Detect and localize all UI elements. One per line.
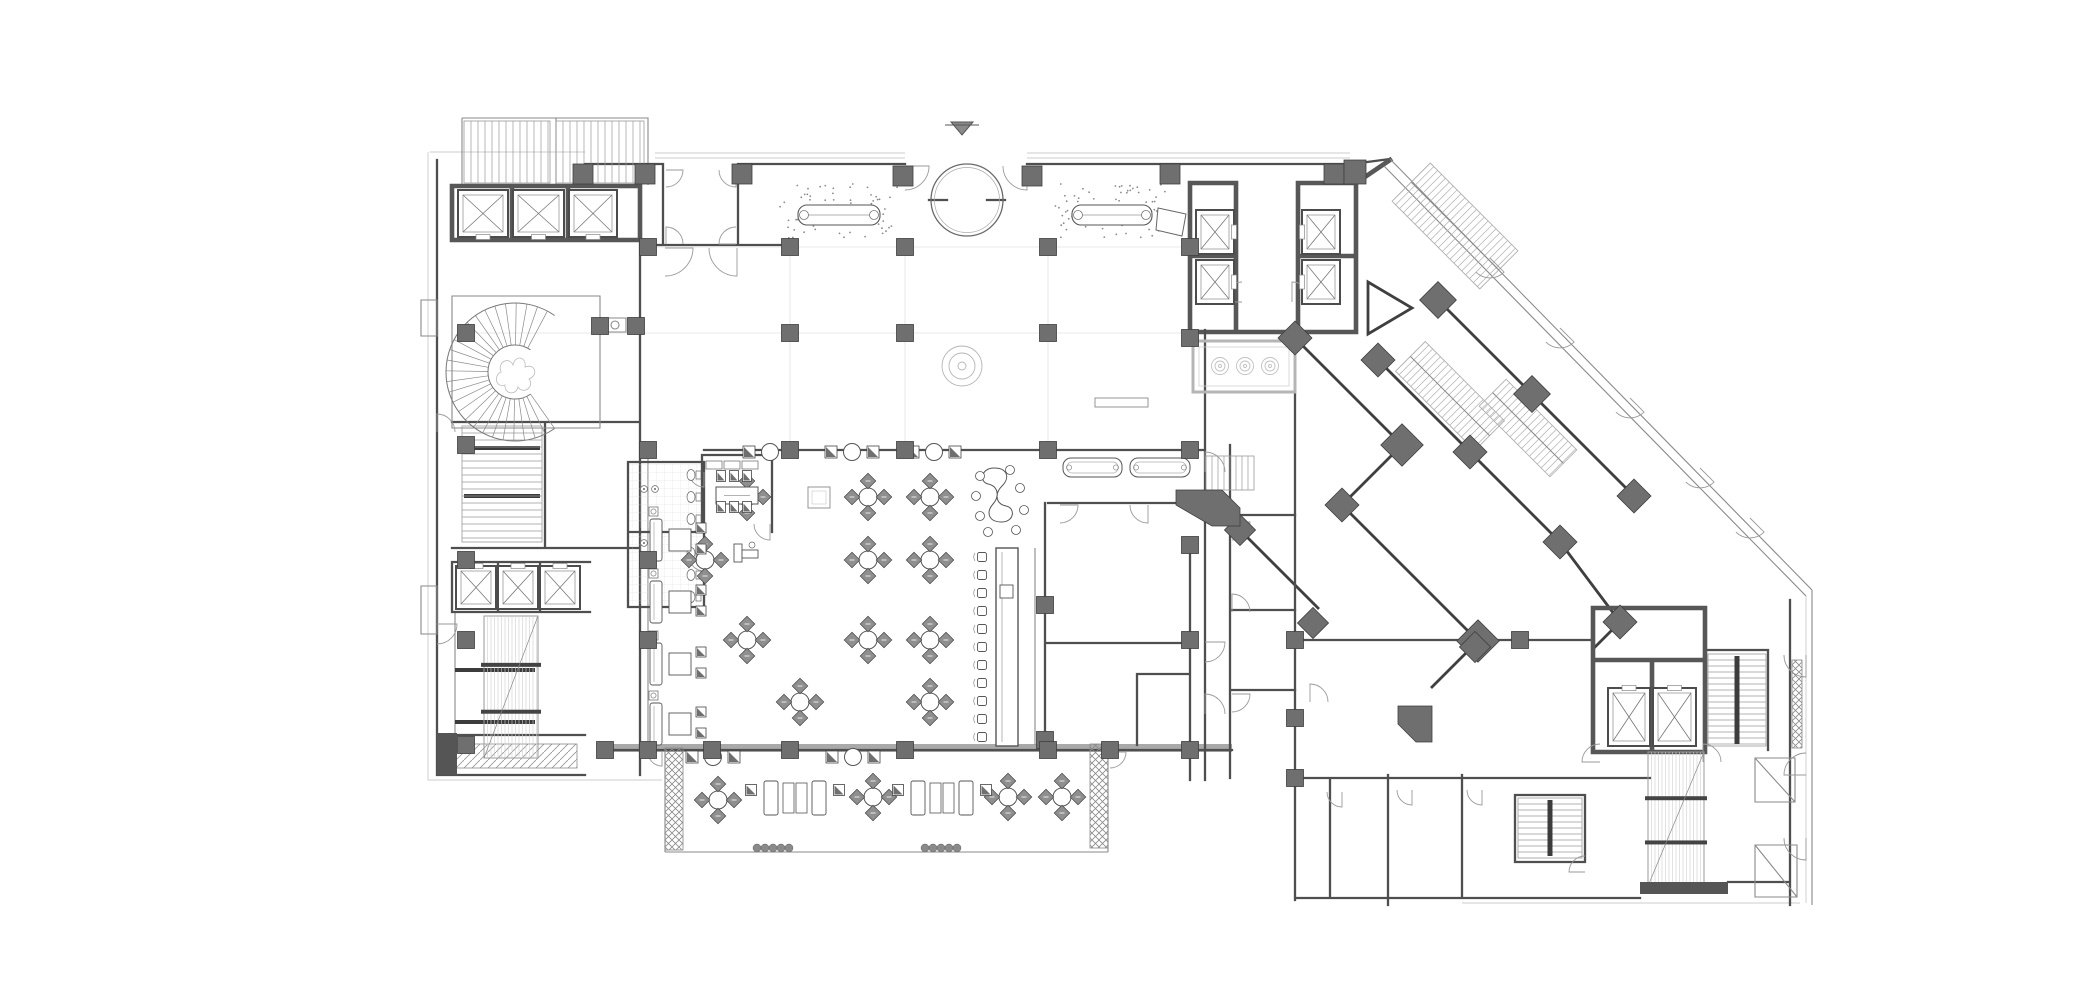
column bbox=[1040, 442, 1057, 459]
banquette-table-group bbox=[907, 444, 961, 461]
stipple-dot bbox=[1119, 186, 1121, 188]
stipple-dot bbox=[803, 231, 805, 233]
stipple-dot bbox=[1138, 192, 1140, 194]
table-top bbox=[859, 488, 877, 506]
sink-drain bbox=[643, 542, 645, 544]
stipple-dot bbox=[832, 187, 834, 189]
stipple-dot bbox=[783, 201, 785, 203]
host-desk bbox=[734, 544, 742, 562]
stipple-dot bbox=[1151, 235, 1153, 237]
elevator-shaft bbox=[1300, 260, 1341, 304]
concierge-podium bbox=[1156, 208, 1186, 236]
sofa bbox=[764, 781, 778, 815]
stair-treads bbox=[1212, 456, 1248, 490]
column bbox=[458, 737, 475, 754]
elevator-shaft bbox=[458, 190, 508, 240]
stipple-dot bbox=[843, 236, 845, 238]
escalator-landing bbox=[1645, 840, 1707, 844]
spiral-inner-rail bbox=[488, 345, 531, 399]
stipple-dot bbox=[833, 199, 835, 201]
host-seat bbox=[749, 542, 755, 548]
column bbox=[628, 318, 645, 335]
column bbox=[458, 437, 475, 454]
stipple-dot bbox=[824, 185, 826, 187]
wall-pier bbox=[573, 164, 593, 184]
door-swing-arc bbox=[666, 227, 683, 244]
stipple-dot bbox=[882, 213, 884, 215]
stair-center-rail bbox=[1735, 656, 1740, 744]
stipple-dot bbox=[878, 223, 880, 225]
stipple-dot bbox=[891, 225, 893, 227]
spiral-centerpiece-flower bbox=[496, 358, 534, 393]
column bbox=[1182, 239, 1199, 256]
shrub-icon bbox=[777, 844, 785, 852]
planter bbox=[665, 748, 683, 850]
shrub-icon bbox=[921, 844, 929, 852]
bar-counter bbox=[974, 548, 1018, 746]
escalator-treads bbox=[488, 616, 537, 758]
stipple-dot bbox=[882, 220, 884, 222]
toilet-icon bbox=[687, 492, 701, 503]
planter bbox=[1090, 744, 1108, 848]
escalator-direction-line bbox=[484, 616, 538, 758]
terrace-lounge-set bbox=[746, 781, 845, 815]
stipple-dot bbox=[1082, 188, 1084, 190]
counter bbox=[996, 548, 1018, 746]
floor-plan-sheet bbox=[0, 0, 2075, 1007]
table-top bbox=[738, 631, 756, 649]
column bbox=[1040, 325, 1057, 342]
column bbox=[897, 325, 914, 342]
dining-table-round bbox=[844, 616, 892, 664]
door-swing-arc bbox=[719, 227, 736, 244]
dining-table-round bbox=[844, 473, 892, 521]
column bbox=[897, 239, 914, 256]
shrub-icon bbox=[785, 844, 793, 852]
side-table bbox=[649, 507, 658, 516]
bench-seat bbox=[1130, 458, 1190, 477]
column bbox=[1287, 770, 1304, 787]
sofa bbox=[812, 781, 826, 815]
stool-icon bbox=[984, 528, 993, 537]
column bbox=[640, 632, 657, 649]
stipple-dot bbox=[1058, 207, 1060, 209]
stipple-dot bbox=[1103, 236, 1105, 238]
column bbox=[640, 742, 657, 759]
stipple-dot bbox=[819, 186, 821, 188]
stipple-dot bbox=[1136, 186, 1138, 188]
dining-table-round bbox=[723, 616, 771, 664]
stair-landing-bar bbox=[464, 446, 540, 450]
stipple-dot bbox=[850, 202, 852, 204]
floor-rug bbox=[808, 487, 830, 508]
door-swing-arc bbox=[754, 524, 770, 540]
reception-desk bbox=[1072, 205, 1152, 225]
toilet-tank bbox=[696, 493, 701, 501]
stipple-dot bbox=[788, 220, 790, 222]
planter bbox=[1792, 660, 1802, 748]
dining-table-round bbox=[906, 616, 954, 664]
stipple-dot bbox=[795, 219, 797, 221]
table-top bbox=[762, 444, 779, 461]
door-swing-arc bbox=[1310, 684, 1328, 702]
floor-medallion bbox=[949, 353, 975, 379]
door-swing-arc bbox=[1397, 790, 1412, 805]
escalator bbox=[481, 616, 541, 758]
table-top bbox=[859, 631, 877, 649]
shrub-icon bbox=[753, 844, 761, 852]
toilet-icon bbox=[687, 470, 701, 481]
column bbox=[640, 552, 657, 569]
stipple-dot bbox=[864, 236, 866, 238]
stipple-dot bbox=[1164, 191, 1166, 193]
elevator-door bbox=[1622, 686, 1636, 691]
floor-medallion bbox=[942, 346, 982, 386]
stipple-dot bbox=[885, 230, 887, 232]
toilet-tank bbox=[696, 515, 701, 523]
stair-handrail bbox=[1411, 182, 1499, 270]
sofa bbox=[911, 781, 925, 815]
stipple-dot bbox=[1060, 236, 1062, 238]
dining-table-round bbox=[849, 773, 897, 821]
table-top bbox=[844, 444, 861, 461]
stipple-dot bbox=[1120, 192, 1122, 194]
door-swing-arc bbox=[437, 624, 457, 644]
table-top bbox=[709, 791, 727, 809]
column bbox=[782, 325, 799, 342]
stipple-dot bbox=[1145, 201, 1147, 203]
stipple-dot bbox=[839, 233, 841, 235]
furniture-layer bbox=[649, 398, 1190, 824]
table-top bbox=[859, 551, 877, 569]
floor-rug-inner bbox=[812, 491, 826, 504]
column bbox=[1512, 632, 1529, 649]
stipple-dot bbox=[1077, 201, 1079, 203]
toilet-tank bbox=[696, 471, 701, 479]
stipple-dot bbox=[1118, 200, 1120, 202]
wall-pier bbox=[732, 164, 752, 184]
column bbox=[897, 442, 914, 459]
stipple-dot bbox=[809, 195, 811, 197]
stipple-dot bbox=[824, 199, 826, 201]
column bbox=[1040, 742, 1057, 759]
elevator-door bbox=[1232, 225, 1237, 239]
toilet-bowl bbox=[687, 570, 695, 581]
elevator-shaft bbox=[513, 190, 564, 240]
stipple-dot bbox=[896, 186, 898, 188]
column bbox=[897, 742, 914, 759]
elevator-door bbox=[476, 235, 490, 240]
door-swing-arc bbox=[1205, 694, 1225, 714]
floor-medallion bbox=[958, 362, 966, 370]
stool-icon bbox=[978, 589, 987, 598]
elevator-door bbox=[1668, 686, 1682, 691]
stool-icon bbox=[1016, 484, 1025, 493]
column bbox=[782, 239, 799, 256]
staircase bbox=[1206, 456, 1254, 490]
elevator-shaft bbox=[1196, 260, 1237, 304]
door-swing-arc bbox=[666, 170, 683, 187]
stool-icon bbox=[978, 607, 987, 616]
stipple-dot bbox=[800, 196, 802, 198]
lobby-bench bbox=[1063, 458, 1122, 477]
entry-arrow-icon bbox=[951, 122, 973, 135]
stipple-dot bbox=[879, 198, 881, 200]
stool-back bbox=[974, 661, 975, 669]
dining-table-round bbox=[906, 473, 954, 521]
stipple-dot bbox=[1132, 188, 1134, 190]
shrub-icon bbox=[929, 844, 937, 852]
table-top bbox=[864, 788, 882, 806]
stool-back bbox=[974, 715, 975, 723]
stipple-dot bbox=[832, 193, 834, 195]
column bbox=[1182, 537, 1199, 554]
wall-band bbox=[1640, 882, 1728, 894]
sink-drain bbox=[643, 488, 645, 490]
table-top bbox=[921, 693, 939, 711]
stipple-dot bbox=[807, 188, 809, 190]
shrub-icon bbox=[945, 844, 953, 852]
stipple-dot bbox=[871, 203, 873, 205]
wall-pier bbox=[1324, 164, 1344, 184]
banquette-table-group bbox=[825, 444, 879, 461]
stipple-dot bbox=[1126, 192, 1128, 194]
cabinet bbox=[706, 461, 722, 469]
stool-icon bbox=[978, 679, 987, 688]
sofa bbox=[650, 643, 662, 685]
walls-layer bbox=[421, 118, 1812, 905]
table-top bbox=[791, 693, 809, 711]
stair-center-rail bbox=[1548, 800, 1553, 856]
elevator-shaft bbox=[1196, 210, 1237, 254]
sofa bbox=[650, 703, 662, 745]
coffee-table bbox=[669, 529, 691, 551]
fountain-jet-icon bbox=[1262, 358, 1279, 375]
elevator-door bbox=[532, 235, 546, 240]
stipple-dot bbox=[814, 229, 816, 231]
toilet-bowl bbox=[687, 470, 695, 481]
side-table bbox=[649, 691, 658, 700]
stool-back bbox=[974, 553, 975, 561]
stool-icon bbox=[976, 512, 985, 521]
stipple-dot bbox=[1115, 233, 1117, 235]
stipple-dot bbox=[1125, 233, 1127, 235]
fountain-jet-icon bbox=[1244, 365, 1247, 368]
stipple-dot bbox=[779, 206, 781, 208]
door-swing-arc bbox=[1736, 518, 1764, 538]
table-top bbox=[1053, 788, 1071, 806]
column bbox=[1182, 442, 1199, 459]
stool-icon bbox=[978, 643, 987, 652]
stipple-dot bbox=[787, 226, 789, 228]
bar-station bbox=[1000, 585, 1013, 598]
lounge-set bbox=[649, 631, 706, 685]
stipple-dot bbox=[1066, 229, 1068, 231]
door-swing-arc bbox=[1060, 505, 1078, 523]
stipple-dot bbox=[1055, 205, 1057, 207]
table-top bbox=[921, 488, 939, 506]
stipple-dot bbox=[1068, 218, 1070, 220]
stipple-dot bbox=[1127, 190, 1129, 192]
stool-icon bbox=[978, 733, 987, 742]
stool-back bbox=[974, 625, 975, 633]
column bbox=[782, 442, 799, 459]
door-swing-arc bbox=[1232, 694, 1250, 712]
column bbox=[1102, 742, 1119, 759]
door-swing-arc bbox=[1616, 398, 1644, 418]
stool-back bbox=[974, 589, 975, 597]
stipple-dot bbox=[867, 187, 869, 189]
table-top bbox=[921, 631, 939, 649]
stair-landing-bar bbox=[455, 720, 535, 724]
elevator-shaft bbox=[1653, 686, 1696, 747]
dining-table-round bbox=[906, 678, 954, 726]
stool-icon bbox=[972, 492, 981, 501]
elevator-door bbox=[586, 235, 600, 240]
stool-icon bbox=[978, 553, 987, 562]
shrub-icon bbox=[937, 844, 945, 852]
fountain-jet-icon bbox=[1240, 361, 1250, 371]
stipple-dot bbox=[1060, 224, 1062, 226]
wall-pier bbox=[893, 166, 913, 186]
stipple-dot bbox=[1148, 229, 1150, 231]
dining-table-round bbox=[984, 773, 1032, 821]
coffee-table bbox=[669, 713, 691, 735]
stipple-dot bbox=[1066, 200, 1068, 202]
stipple-dot bbox=[809, 199, 811, 201]
shrub-icon bbox=[761, 844, 769, 852]
column bbox=[458, 632, 475, 649]
stipple-dot bbox=[1102, 228, 1104, 230]
sofa bbox=[650, 581, 662, 623]
table bbox=[930, 783, 941, 813]
corner-pier bbox=[1398, 706, 1432, 742]
escalator bbox=[1645, 752, 1707, 886]
stair-handrail bbox=[1410, 356, 1489, 435]
stool-back bbox=[974, 733, 975, 741]
stipple-dot bbox=[1067, 210, 1069, 212]
fountain-jet-icon bbox=[1219, 365, 1222, 368]
reception-desk bbox=[798, 205, 880, 225]
stool-icon bbox=[978, 715, 987, 724]
stipple-dot bbox=[1088, 191, 1090, 193]
sink-drain bbox=[654, 488, 656, 490]
spiral-staircase bbox=[446, 303, 555, 441]
stipple-dot bbox=[884, 208, 886, 210]
door-swing-arc bbox=[1205, 452, 1225, 472]
table bbox=[943, 783, 954, 813]
dining-table-round bbox=[1038, 773, 1086, 821]
dining-table-round bbox=[694, 776, 742, 824]
stipple-dot bbox=[849, 186, 851, 188]
wall-pier bbox=[1160, 164, 1180, 184]
floor-plan-drawing bbox=[0, 0, 2075, 1007]
wall-band bbox=[437, 733, 457, 775]
fountain-jet-icon bbox=[1265, 361, 1275, 371]
elevator-door bbox=[1300, 225, 1305, 239]
column bbox=[640, 442, 657, 459]
column bbox=[597, 742, 614, 759]
wall-pier bbox=[635, 164, 655, 184]
dining-table-round bbox=[906, 536, 954, 584]
coffee-table bbox=[669, 591, 691, 613]
stipple-dot bbox=[1078, 197, 1080, 199]
stool-back bbox=[974, 679, 975, 687]
stipple-dot bbox=[1085, 226, 1087, 228]
dining-table-round bbox=[844, 536, 892, 584]
stipple-dot bbox=[882, 233, 884, 235]
column bbox=[458, 325, 475, 342]
stool-back bbox=[974, 571, 975, 579]
cabinet bbox=[724, 461, 740, 469]
elevator-door bbox=[1232, 275, 1237, 289]
stool-icon bbox=[978, 571, 987, 580]
door-swing-arc bbox=[1130, 505, 1148, 523]
table bbox=[783, 783, 794, 813]
stipple-dot bbox=[1129, 185, 1131, 187]
stool-icon bbox=[1012, 526, 1021, 535]
stipple-dot bbox=[793, 229, 795, 231]
stipple-dot bbox=[1152, 201, 1154, 203]
wall-pier bbox=[1022, 166, 1042, 186]
stool-back bbox=[974, 643, 975, 651]
stipple-dot bbox=[849, 232, 851, 234]
stool-back bbox=[974, 697, 975, 705]
elevator-shaft bbox=[498, 564, 538, 610]
column bbox=[1182, 742, 1199, 759]
escalator-landing bbox=[481, 663, 541, 667]
coffee-table bbox=[669, 653, 691, 675]
door-swing-arc bbox=[665, 248, 693, 276]
stipple-dot bbox=[881, 227, 883, 229]
stipple-dot bbox=[875, 196, 877, 198]
column bbox=[458, 552, 475, 569]
table-top bbox=[999, 788, 1017, 806]
elevator-shaft bbox=[569, 190, 617, 240]
lobby-bench bbox=[1130, 458, 1190, 477]
stool-icon bbox=[978, 661, 987, 670]
cabinet bbox=[742, 461, 758, 469]
stipple-dot bbox=[1065, 211, 1067, 213]
elevator-shaft bbox=[1608, 686, 1650, 747]
private-dining-set bbox=[706, 461, 758, 562]
stool-back bbox=[974, 607, 975, 615]
stipple-dot bbox=[1155, 196, 1157, 198]
stool-icon bbox=[978, 697, 987, 706]
elevator-door bbox=[1300, 275, 1305, 289]
stipple-dot bbox=[850, 199, 852, 201]
stipple-dot bbox=[1149, 189, 1151, 191]
table-top bbox=[982, 468, 1012, 522]
column bbox=[1182, 632, 1199, 649]
dining-table-round bbox=[776, 678, 824, 726]
shrub-icon bbox=[769, 844, 777, 852]
corner-pier bbox=[1344, 160, 1366, 184]
column bbox=[704, 742, 721, 759]
ramp-triangle bbox=[1368, 282, 1412, 334]
door-swing-arc bbox=[1205, 642, 1225, 662]
stipple-dot bbox=[889, 197, 891, 199]
grand-stair-run bbox=[1392, 163, 1518, 289]
fountain-jet-icon bbox=[1212, 358, 1229, 375]
column bbox=[1037, 597, 1054, 614]
column bbox=[782, 742, 799, 759]
shrub-icon bbox=[953, 844, 961, 852]
stipple-dot bbox=[888, 227, 890, 229]
fountain-jet-icon bbox=[1237, 358, 1254, 375]
stipple-dot bbox=[1115, 185, 1117, 187]
stipple-dot bbox=[1074, 195, 1076, 197]
